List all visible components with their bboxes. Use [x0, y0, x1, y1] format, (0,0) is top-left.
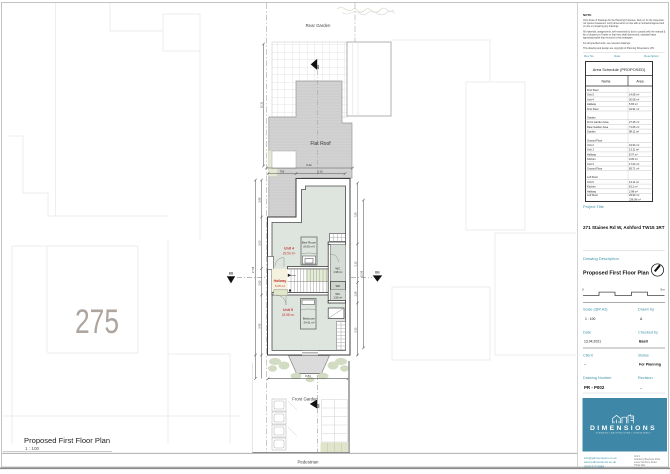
svg-text:8.84: 8.84	[305, 374, 311, 378]
svg-text:8.37 m²: 8.37 m²	[629, 152, 638, 156]
svg-text:WD: WD	[336, 284, 340, 288]
svg-text:Unit 6: Unit 6	[587, 180, 594, 184]
svg-text:5.65 m²: 5.65 m²	[629, 102, 638, 106]
svg-text:Area: Area	[636, 80, 643, 84]
svg-text:Unit 4: Unit 4	[587, 97, 594, 101]
svg-text:19.94 m²: 19.94 m²	[629, 143, 639, 147]
svg-text:29.50 m²: 29.50 m²	[283, 252, 296, 256]
svg-text:17.56: 17.56	[252, 266, 255, 273]
svg-text:Pedestrian: Pedestrian	[298, 460, 320, 465]
svg-text:Unit 2: Unit 2	[587, 143, 594, 147]
svg-text:Unit 5: Unit 5	[587, 93, 594, 97]
svg-text:18.58 m²: 18.58 m²	[282, 313, 295, 317]
svg-text:Hallway: Hallway	[274, 279, 287, 283]
svg-text:8.11 m²: 8.11 m²	[629, 185, 638, 189]
svg-text:PR - P002: PR - P002	[584, 385, 605, 390]
svg-text:Date: Date	[614, 54, 621, 58]
svg-text:Rear Garden: Rear Garden	[306, 23, 331, 28]
svg-text:5.05: 5.05	[258, 240, 261, 245]
svg-text:First Floor: First Floor	[587, 88, 599, 92]
svg-text:236.09 m²: 236.09 m²	[629, 198, 641, 202]
svg-text:PLANNING | ARCHITECTURE | CONS: PLANNING | ARCHITECTURE | CONSULTANCY	[596, 432, 651, 435]
svg-text:BB: BB	[375, 271, 380, 275]
svg-text:14.08 m²: 14.08 m²	[629, 93, 639, 97]
svg-text:Front Garden: Front Garden	[292, 397, 318, 402]
svg-text:AA: AA	[316, 64, 320, 69]
svg-text:Hallway: Hallway	[587, 152, 597, 156]
svg-text:For all specified work, see re: For all specified work, see relevant dra…	[583, 42, 631, 45]
svg-text:Unit 4: Unit 4	[284, 247, 294, 251]
svg-text:First Floor: First Floor	[587, 107, 599, 111]
svg-text:Checked by: Checked by	[638, 331, 658, 335]
svg-text:9.22: 9.22	[306, 163, 312, 167]
svg-text:Unit 1: Unit 1	[587, 148, 594, 152]
svg-text:275: 275	[75, 303, 119, 341]
svg-text:approbationable that removed a: approbationable that removed a that stra…	[583, 37, 633, 40]
svg-text:Drawing Number: Drawing Number	[583, 376, 612, 380]
svg-text:Date: Date	[583, 331, 591, 335]
svg-text:98.11 m²: 98.11 m²	[629, 130, 639, 134]
svg-text:For Planning: For Planning	[639, 363, 661, 367]
svg-text:1 : 100: 1 : 100	[585, 317, 595, 321]
svg-text:1 : 100: 1 : 100	[25, 446, 39, 451]
svg-text:Hallway: Hallway	[587, 189, 597, 193]
svg-text:Rev No: Rev No	[584, 54, 594, 58]
svg-text:Description: Description	[644, 54, 659, 58]
svg-text:1.98 m²: 1.98 m²	[333, 270, 342, 274]
svg-text:13.11 m²: 13.11 m²	[629, 180, 639, 184]
svg-text:Proposed First Floor Plan: Proposed First Floor Plan	[24, 436, 110, 445]
svg-text:Kitchen: Kitchen	[587, 157, 596, 161]
svg-text:3.66: 3.66	[258, 197, 261, 202]
svg-text:Scale (@# A3): Scale (@# A3)	[583, 308, 608, 312]
svg-text:Garden: Garden	[587, 130, 596, 134]
svg-text:Drawn by: Drawn by	[638, 308, 654, 312]
svg-text:2.98 m²: 2.98 m²	[629, 189, 638, 193]
svg-text:Project Title: Project Title	[583, 204, 605, 209]
svg-text:Revision: Revision	[638, 376, 653, 380]
svg-text:Front Garden Area: Front Garden Area	[587, 120, 609, 124]
svg-text:Name: Name	[601, 80, 610, 84]
svg-text:13.04.2021: 13.04.2021	[584, 340, 601, 344]
svg-text:Basit: Basit	[639, 340, 649, 344]
svg-text:1.56 m²: 1.56 m²	[333, 295, 342, 299]
svg-text:85.71 m²: 85.71 m²	[629, 167, 639, 171]
svg-text:20.08 m²: 20.08 m²	[629, 97, 639, 101]
svg-text:24.01 m²: 24.01 m²	[303, 321, 314, 325]
svg-text:Client: Client	[583, 354, 594, 358]
svg-text:5.90: 5.90	[258, 323, 261, 328]
svg-text:Proposed First Floor Plan: Proposed First Floor Plan	[583, 271, 649, 277]
svg-text:42.91 m²: 42.91 m²	[629, 107, 639, 111]
svg-text:71.06 m²: 71.06 m²	[629, 125, 639, 129]
svg-text:WC: WC	[335, 292, 340, 296]
svg-text:(9.00 m²): (9.00 m²)	[303, 245, 314, 249]
svg-text:Unit 3: Unit 3	[587, 162, 594, 166]
svg-text:Kitchen: Kitchen	[587, 185, 596, 189]
svg-text:Ground Floor: Ground Floor	[587, 138, 602, 142]
svg-text:Loft Floor: Loft Floor	[587, 175, 598, 179]
svg-text:1.56: 1.56	[354, 291, 357, 296]
svg-text:5.20: 5.20	[354, 327, 357, 332]
svg-text:7.59: 7.59	[354, 212, 357, 217]
svg-text:on site or preparing any drawi: on site or preparing any drawings.	[583, 25, 619, 28]
svg-text:17.04 m²: 17.04 m²	[629, 162, 639, 166]
svg-text:Hallway: Hallway	[587, 102, 597, 106]
svg-text:Area Schedule (PROPOSED): Area Schedule (PROPOSED)	[593, 67, 646, 72]
svg-text:0208 979 9088: 0208 979 9088	[584, 464, 604, 468]
svg-text:Unit 5: Unit 5	[283, 308, 293, 312]
svg-text:9.05 m²: 9.05 m²	[629, 157, 638, 161]
svg-text:Flat Roof: Flat Roof	[310, 141, 331, 147]
svg-text:Garden: Garden	[587, 116, 596, 120]
svg-text:2.63: 2.63	[258, 280, 261, 285]
svg-text:AA: AA	[317, 403, 321, 408]
svg-text:271 Staines Rd W, Ashford TW15: 271 Staines Rd W, Ashford TW15 1RT	[583, 225, 665, 230]
svg-text:5m: 5m	[661, 287, 666, 291]
svg-text:Drawing Description: Drawing Description	[583, 256, 619, 261]
svg-text:15.56: 15.56	[360, 270, 363, 277]
svg-text:10.11: 10.11	[260, 101, 263, 108]
svg-text:–: –	[640, 386, 642, 390]
svg-text:London: London	[634, 467, 643, 470]
svg-text:Status: Status	[638, 354, 649, 358]
svg-text:756: 756	[280, 169, 285, 173]
svg-text:WC: WC	[335, 267, 340, 271]
svg-text:13.11 m²: 13.11 m²	[629, 148, 639, 152]
svg-text:DIMENSIONS: DIMENSIONS	[590, 425, 657, 432]
svg-text:Ground Floor: Ground Floor	[587, 167, 602, 171]
svg-text:This drawing and design are co: This drawing and design are copyright of…	[583, 47, 654, 50]
svg-text:27.46 m²: 27.46 m²	[629, 120, 639, 124]
svg-text:5.65 m²: 5.65 m²	[275, 284, 285, 288]
svg-text:2.16: 2.16	[317, 169, 323, 173]
svg-text:2.10: 2.10	[354, 261, 357, 266]
svg-text:BB: BB	[229, 272, 234, 276]
svg-text:–: –	[584, 363, 586, 367]
svg-text:Rear Garden Area: Rear Garden Area	[587, 125, 609, 129]
svg-text:NOTE: NOTE	[583, 13, 591, 17]
